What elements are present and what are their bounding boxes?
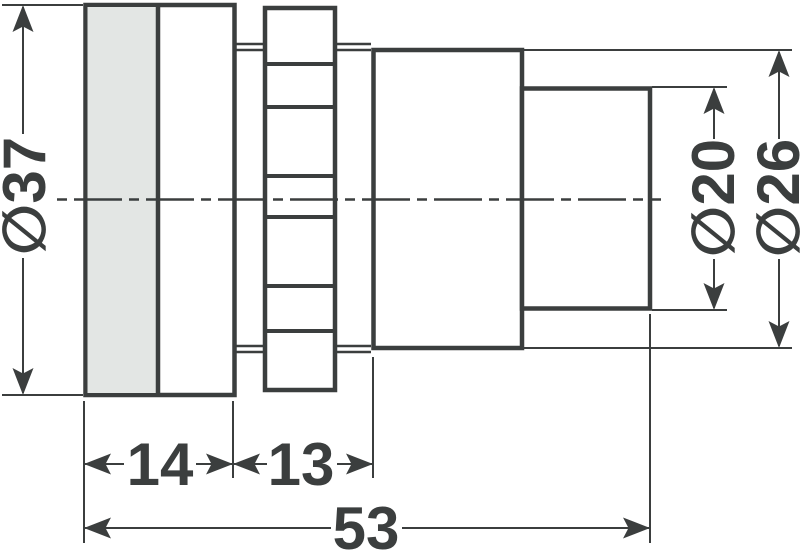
dim-label-length-53: 53 xyxy=(333,495,400,551)
stroke-color-group: ∅37 14 xyxy=(0,5,800,551)
dim-label-length-14: 14 xyxy=(127,431,194,498)
fill-color-group: ∅37 14 xyxy=(0,5,800,551)
dim-label-length-13: 13 xyxy=(268,431,335,498)
dim-label-diameter-20: ∅20 xyxy=(680,139,747,257)
pilot-light-dimension-drawing: ∅37 14 xyxy=(0,0,800,551)
dim-label-diameter-26: ∅26 xyxy=(745,139,800,257)
dim-diameter-20: ∅20 xyxy=(652,87,747,310)
dim-label-diameter-37: ∅37 xyxy=(0,137,58,255)
technical-drawing-page: ∅37 14 xyxy=(0,0,800,551)
dim-diameter-37: ∅37 xyxy=(0,5,83,395)
